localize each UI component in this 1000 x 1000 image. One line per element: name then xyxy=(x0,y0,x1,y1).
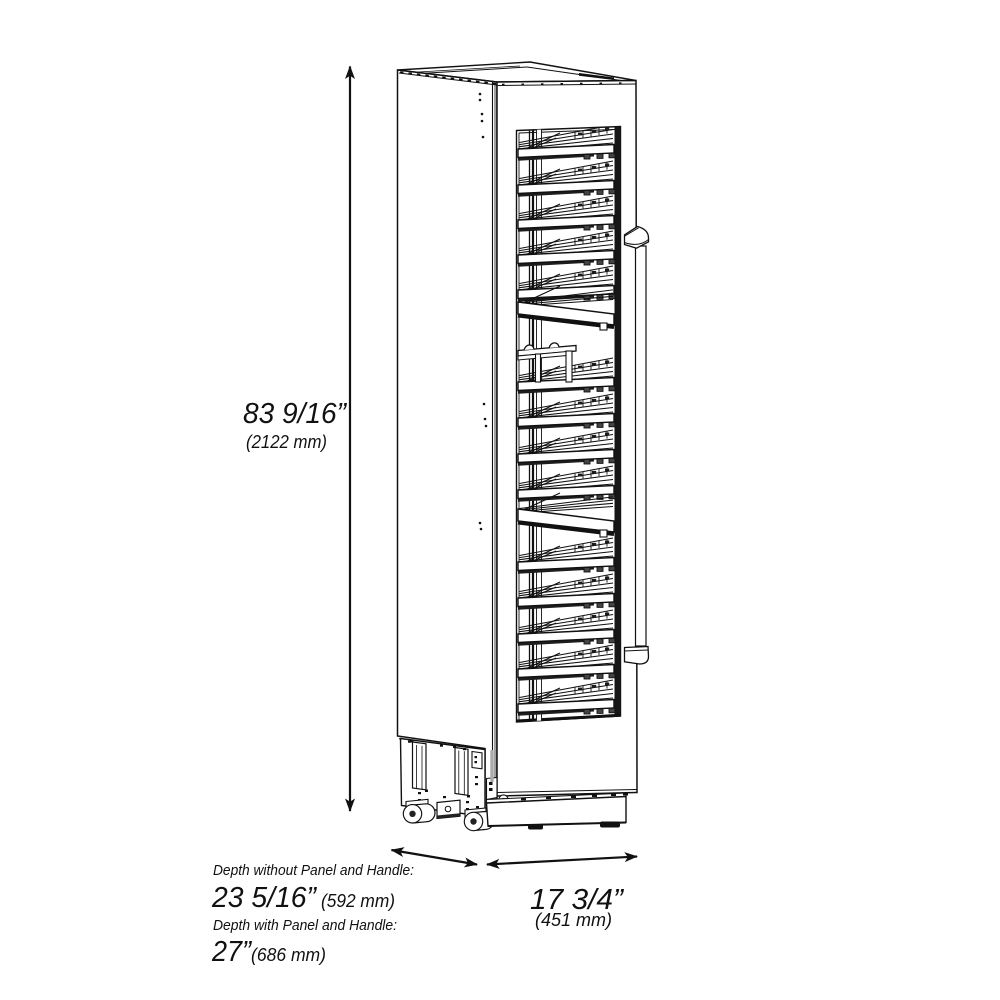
svg-text:(2122 mm): (2122 mm) xyxy=(246,432,327,452)
svg-text:Depth without Panel and Handle: Depth without Panel and Handle: xyxy=(213,862,414,879)
svg-text:83 9/16”: 83 9/16” xyxy=(243,398,347,430)
svg-text:(451 mm): (451 mm) xyxy=(535,910,612,930)
svg-text:(686 mm): (686 mm) xyxy=(251,945,326,965)
svg-text:(592 mm): (592 mm) xyxy=(321,891,395,911)
svg-text:27”: 27” xyxy=(211,936,252,968)
svg-text:23 5/16”: 23 5/16” xyxy=(211,882,317,914)
svg-text:Depth with Panel and Handle:: Depth with Panel and Handle: xyxy=(213,917,397,934)
